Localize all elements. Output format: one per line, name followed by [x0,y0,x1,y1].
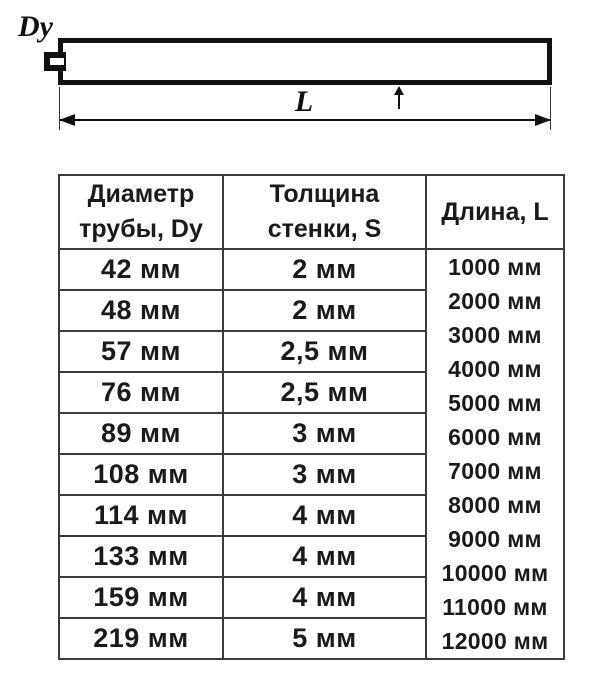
length-item: 12000 мм [427,624,563,658]
table-row: 42 мм 2 мм 1000 мм 2000 мм 3000 мм 4000 … [59,249,564,290]
length-item: 8000 мм [427,488,563,522]
length-item: 5000 мм [427,386,563,420]
diameter-cell: 108 мм [59,454,223,495]
diameter-cell: 76 мм [59,372,223,413]
thickness-cell: 4 мм [223,577,426,618]
pipe-body-outline [58,38,552,85]
length-list-cell: 1000 мм 2000 мм 3000 мм 4000 мм 5000 мм … [426,249,564,659]
dimension-arrow-right-icon [535,114,551,126]
length-item: 11000 мм [427,590,563,624]
pipe-diameter-label: Dy [18,10,53,44]
diameter-cell: 42 мм [59,249,223,290]
column-header-thickness-line1: Толщина [224,177,425,212]
thickness-cell: 5 мм [223,618,426,659]
length-item: 6000 мм [427,420,563,454]
length-item: 4000 мм [427,352,563,386]
column-header-length: Длина, L [426,175,564,249]
dimension-arrow-left-icon [59,114,75,126]
diameter-cell: 48 мм [59,290,223,331]
pipe-diagram: Dy S L [0,0,608,160]
thickness-cell: 2 мм [223,249,426,290]
column-header-thickness-line2: стенки, S [224,212,425,247]
length-item: 10000 мм [427,556,563,590]
thickness-cell: 4 мм [223,536,426,577]
diameter-cell: 159 мм [59,577,223,618]
column-header-diameter: Диаметр трубы, Dy [59,175,223,249]
diameter-cell: 114 мм [59,495,223,536]
diameter-cell: 133 мм [59,536,223,577]
column-header-diameter-line1: Диаметр [60,177,222,212]
length-item: 2000 мм [427,284,563,318]
length-item: 1000 мм [427,250,563,284]
pipe-length-label: L [0,85,608,119]
pipe-spec-table: Диаметр трубы, Dy Толщина стенки, S Длин… [58,174,565,660]
thickness-cell: 3 мм [223,454,426,495]
thickness-cell: 2 мм [223,290,426,331]
length-item: 7000 мм [427,454,563,488]
column-header-diameter-line2: трубы, Dy [60,212,222,247]
thickness-cell: 3 мм [223,413,426,454]
diameter-cell: 57 мм [59,331,223,372]
diameter-cell: 89 мм [59,413,223,454]
thickness-cell: 4 мм [223,495,426,536]
column-header-thickness: Толщина стенки, S [223,175,426,249]
thickness-cell: 2,5 мм [223,331,426,372]
length-dimension-line [60,119,550,121]
diameter-cell: 219 мм [59,618,223,659]
thickness-cell: 2,5 мм [223,372,426,413]
header-row: Диаметр трубы, Dy Толщина стенки, S Длин… [59,175,564,249]
length-item: 9000 мм [427,522,563,556]
length-item: 3000 мм [427,318,563,352]
pipe-stub-slot [50,58,64,65]
